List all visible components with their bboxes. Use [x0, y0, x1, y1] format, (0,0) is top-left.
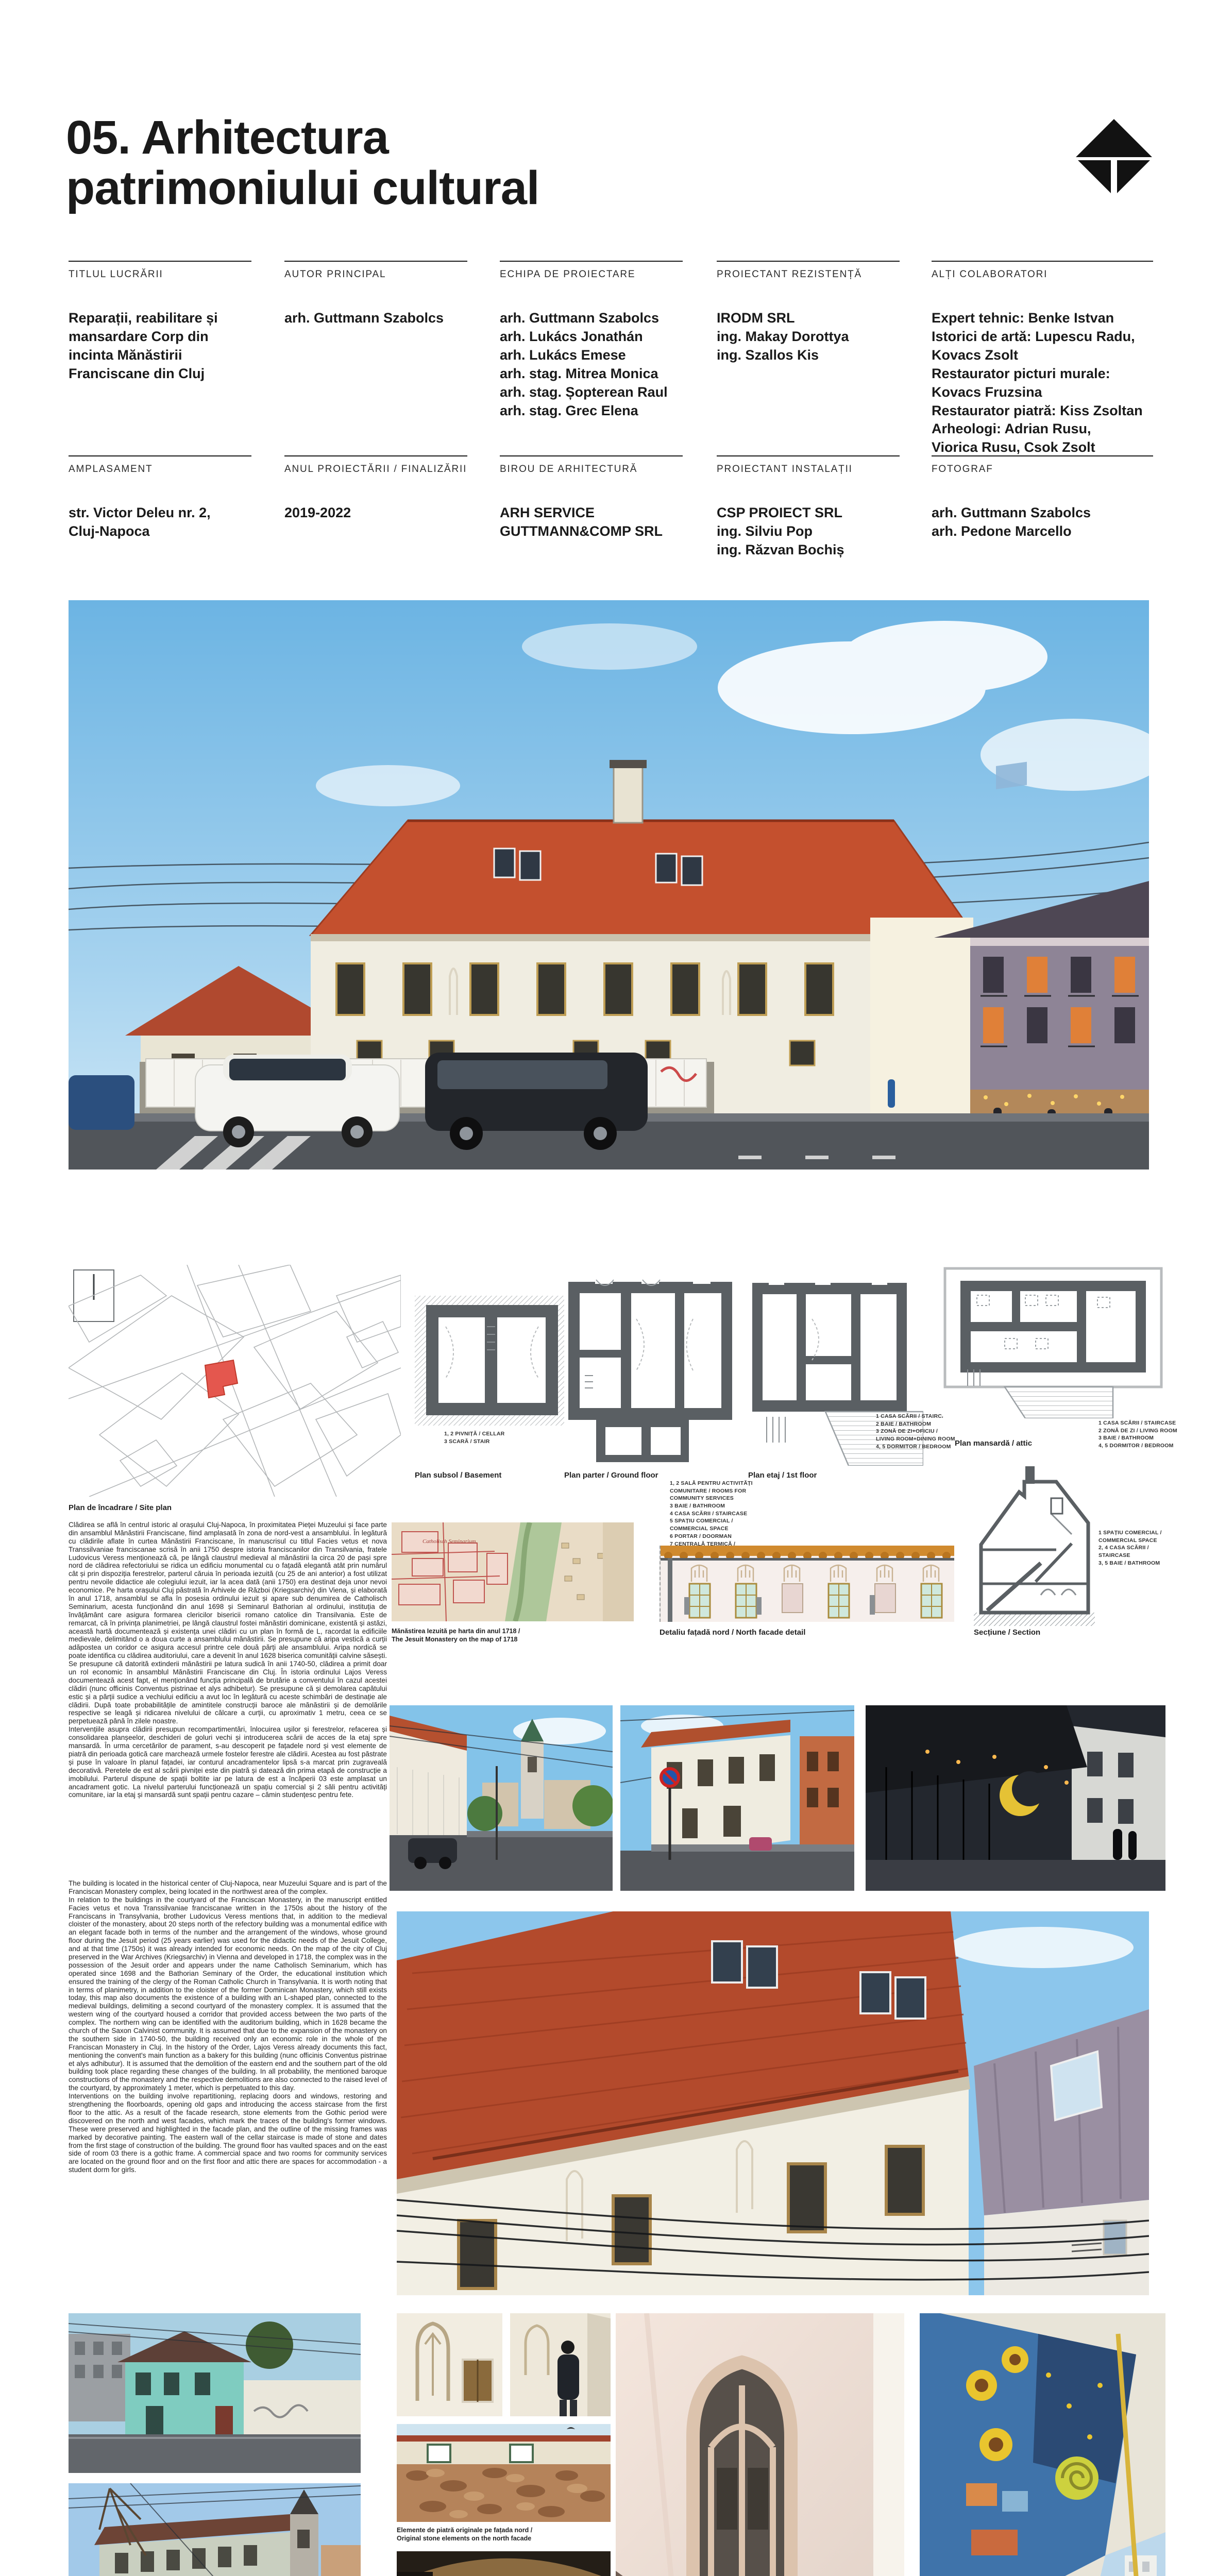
divider — [69, 261, 251, 262]
page-title: 05. Arhitectura patrimoniului cultural — [66, 112, 539, 214]
basement-caption: Plan subsol / Basement — [415, 1471, 501, 1481]
meta-titlul-lucrarii: TITLUL LUCRĂRII Reparații, reabilitare ș… — [69, 261, 275, 383]
first-floor-caption: Plan etaj / 1st floor — [748, 1471, 817, 1481]
north-facade-detail-drawing — [660, 1546, 954, 1622]
meta-value: str. Victor Deleu nr. 2, Cluj-Napoca — [69, 504, 275, 541]
meta-autor-principal: AUTOR PRINCIPAL arh. Guttmann Szabolcs — [284, 261, 491, 328]
meta-label: PROIECTANT INSTALAȚII — [717, 464, 923, 475]
divider — [932, 455, 1153, 456]
attic-plan-drawing — [943, 1266, 1180, 1418]
site-plan-drawing — [69, 1265, 401, 1497]
photo-gothic-window-reconstructed — [616, 2313, 904, 2576]
photo-facade-before-1 — [69, 2313, 361, 2473]
divider — [284, 261, 467, 262]
section-legend: 1 SPAȚIU COMERCIAL / COMMERCIAL SPACE 2,… — [1098, 1529, 1162, 1567]
photo-street-with-church-tower — [390, 1705, 613, 1891]
photo-roof-and-facade-after-restoration — [397, 1911, 1149, 2295]
attic-caption: Plan mansardă / attic — [955, 1439, 1032, 1449]
divider — [717, 261, 900, 262]
map-caption: Mănăstirea Iezuită pe harta din anul 171… — [392, 1627, 520, 1644]
photo-porter-cabin-moon — [866, 1705, 1165, 1891]
meta-instalatii: PROIECTANT INSTALAȚII CSP PROIECT SRL in… — [717, 455, 923, 560]
divider — [932, 261, 1153, 262]
meta-fotograf: FOTOGRAF arh. Guttmann Szabolcs arh. Ped… — [932, 455, 1165, 541]
meta-label: ANUL PROIECTĂRII / FINALIZĂRII — [284, 464, 491, 475]
photo-painted-eave — [920, 2313, 1165, 2576]
stone-elements-caption: Elemente de piatră originale pe fațada n… — [397, 2526, 532, 2543]
meta-birou: BIROU DE ARHITECTURĂ ARH SERVICE GUTTMAN… — [500, 455, 706, 541]
site-plan-caption: Plan de încadrare / Site plan — [69, 1503, 172, 1513]
batra-diamond-icon — [1076, 119, 1152, 195]
meta-value: CSP PROIECT SRL ing. Silviu Pop ing. Răz… — [717, 504, 923, 560]
divider — [69, 455, 251, 456]
photo-facade-before-2 — [69, 2483, 361, 2576]
meta-label: PROIECTANT REZISTENȚĂ — [717, 269, 923, 280]
meta-label: ALȚI COLABORATORI — [932, 269, 1165, 280]
ground-caption: Plan parter / Ground floor — [564, 1471, 658, 1481]
basement-legend: 1, 2 PIVNIȚĂ / CELLAR 3 SCARĂ / STAIR — [444, 1430, 504, 1445]
photo-facade-inspection — [510, 2313, 611, 2416]
meta-value: IRODM SRL ing. Makay Dorottya ing. Szall… — [717, 309, 923, 365]
photo-cellar-wall — [397, 2551, 611, 2576]
meta-rezistenta: PROIECTANT REZISTENȚĂ IRODM SRL ing. Mak… — [717, 261, 923, 365]
meta-anul: ANUL PROIECTĂRII / FINALIZĂRII 2019-2022 — [284, 455, 491, 522]
section-caption: Secțiune / Section — [974, 1628, 1040, 1638]
meta-label: AMPLASAMENT — [69, 464, 275, 475]
meta-amplasament: AMPLASAMENT str. Victor Deleu nr. 2, Clu… — [69, 455, 275, 541]
meta-value: arh. Guttmann Szabolcs arh. Lukács Jonat… — [500, 309, 706, 420]
attic-legend: 1 CASA SCĂRII / STAIRCASE 2 ZONĂ DE ZI /… — [1098, 1419, 1177, 1450]
meta-label: TITLUL LUCRĂRII — [69, 269, 275, 280]
basement-plan-drawing — [415, 1296, 569, 1426]
photo-gothic-tracery-detail — [397, 2313, 502, 2416]
divider — [717, 455, 900, 456]
meta-label: AUTOR PRINCIPAL — [284, 269, 491, 280]
meta-value: 2019-2022 — [284, 504, 491, 522]
text-romanian: Clădirea se află în centrul istoric al o… — [69, 1521, 387, 1799]
divider — [500, 455, 683, 456]
meta-echipa: ECHIPA DE PROIECTARE arh. Guttmann Szabo… — [500, 261, 706, 420]
ground-legend: 1, 2 SALĂ PENTRU ACTIVITĂȚI COMUNITARE /… — [670, 1480, 753, 1555]
meta-value: Reparații, reabilitare și mansardare Cor… — [69, 309, 275, 383]
poster-board: 05. Arhitectura patrimoniului cultural T… — [0, 0, 1217, 2576]
text-english: The building is located in the historica… — [69, 1879, 387, 2174]
meta-value: arh. Guttmann Szabolcs arh. Pedone Marce… — [932, 504, 1165, 541]
first-floor-legend: 1 CASA SCĂRII / STAIRCASE 2 BAIE / BATHR… — [876, 1413, 955, 1450]
meta-label: FOTOGRAF — [932, 464, 1165, 475]
divider — [500, 261, 683, 262]
ground-plan-drawing — [564, 1267, 737, 1466]
meta-colaboratori: ALȚI COLABORATORI Expert tehnic: Benke I… — [932, 261, 1165, 457]
facade-detail-caption: Detaliu fațadă nord / North facade detai… — [660, 1628, 805, 1638]
meta-label: BIROU DE ARHITECTURĂ — [500, 464, 706, 475]
meta-value: arh. Guttmann Szabolcs — [284, 309, 491, 328]
historic-map-photo: Catholisch Seminarium. — [392, 1522, 634, 1621]
photo-brick-wall-house — [397, 2424, 611, 2522]
main-photo-monastery-street — [69, 600, 1149, 1170]
meta-value: Expert tehnic: Benke Istvan Istorici de … — [932, 309, 1165, 457]
section-drawing — [974, 1462, 1095, 1628]
meta-value: ARH SERVICE GUTTMANN&COMP SRL — [500, 504, 706, 541]
map-label: Catholisch Seminarium. — [422, 1538, 477, 1545]
meta-label: ECHIPA DE PROIECTARE — [500, 269, 706, 280]
photo-street-corner-white-building — [620, 1705, 854, 1891]
divider — [284, 455, 467, 456]
